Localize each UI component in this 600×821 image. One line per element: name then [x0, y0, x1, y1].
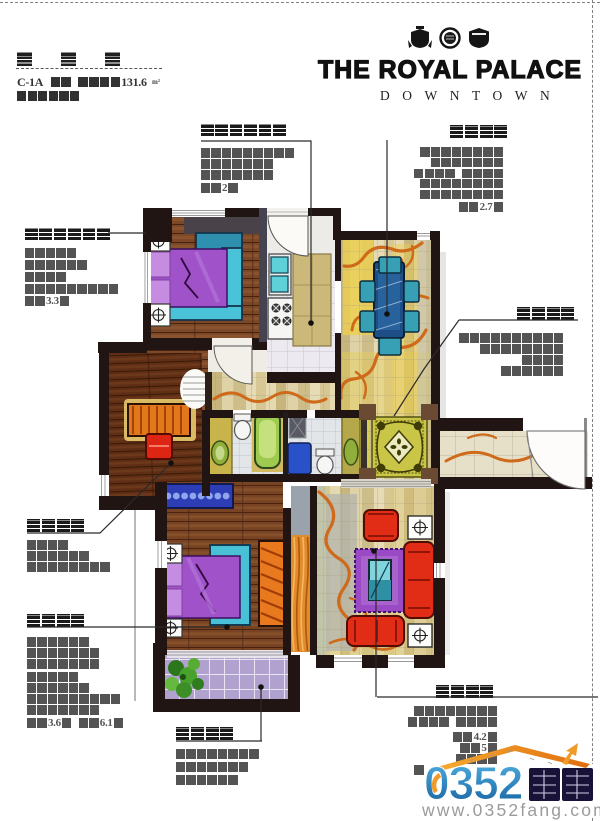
svg-text:www.0352fang.com: www.0352fang.com — [421, 800, 600, 820]
